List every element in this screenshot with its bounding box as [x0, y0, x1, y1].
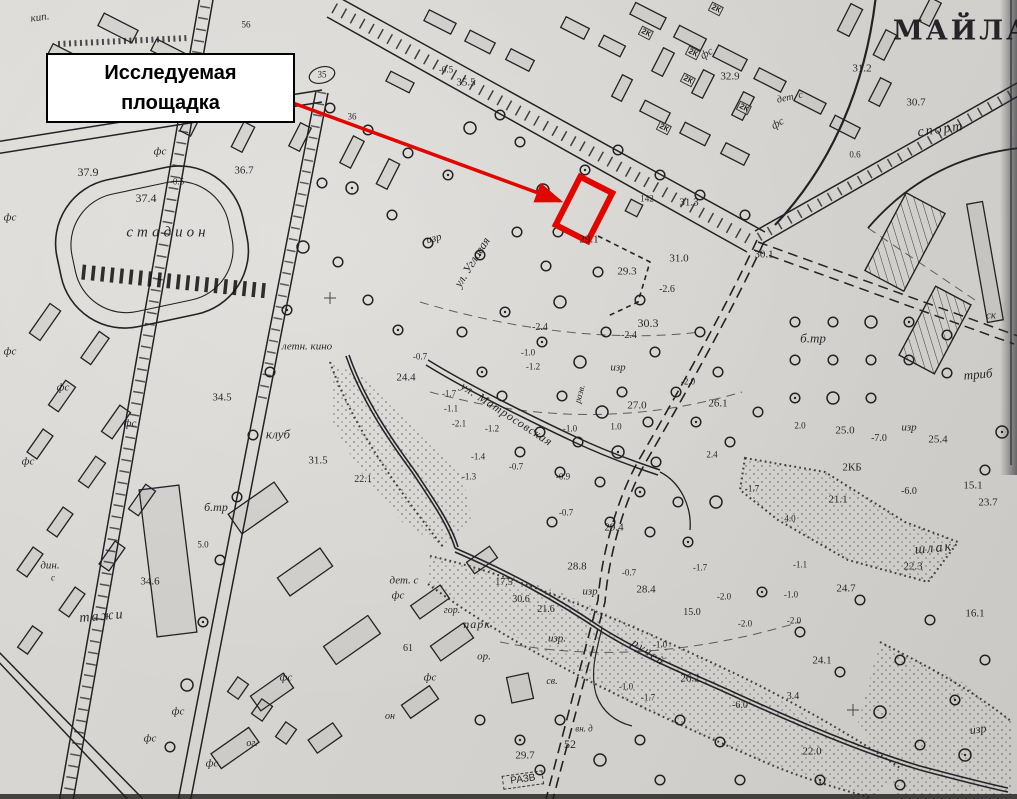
building-outline [386, 71, 414, 93]
tree-symbol [942, 368, 952, 378]
building-outline [98, 13, 138, 43]
tree-symbol [512, 227, 522, 237]
tree-symbol [753, 407, 763, 417]
building-outline [228, 482, 288, 534]
tree-symbol [725, 437, 735, 447]
tree-symbol [535, 427, 545, 437]
building-outline [340, 136, 364, 168]
tree-symbol-dot [519, 739, 521, 741]
tree-symbol [617, 387, 627, 397]
tree-symbol [980, 465, 990, 475]
tree-symbol-dot [954, 699, 956, 701]
tree-symbol-dot [695, 421, 697, 423]
building-outline [599, 35, 626, 57]
stipple-areas [330, 362, 1012, 799]
building-outline [47, 507, 73, 537]
tree-symbol [740, 210, 750, 220]
tree-symbol-dot [541, 341, 543, 343]
annotation-arrow [293, 103, 560, 201]
tree-symbol [403, 148, 413, 158]
building-outline [277, 548, 332, 596]
scanned-topographic-map: МАЙЛАстадионспортул. Угловаяул. Матросов… [0, 0, 1017, 799]
tree-symbol-dot [761, 591, 763, 593]
building-outline [48, 380, 75, 411]
building-outline [692, 70, 714, 99]
tree-symbol [645, 527, 655, 537]
building-outline [640, 100, 670, 123]
building-outline [754, 68, 786, 92]
tree-symbol [790, 355, 800, 365]
tree-symbol-dot [481, 371, 483, 373]
building-outline [276, 722, 297, 744]
tree-symbol [594, 754, 606, 766]
tree-symbol [423, 238, 433, 248]
building-outline [231, 122, 254, 152]
annotation-label-box: Исследуемая площадка [46, 53, 295, 123]
building-outline [713, 45, 747, 71]
tree-symbol [515, 137, 525, 147]
tree-symbol [980, 655, 990, 665]
tree-symbol [574, 356, 586, 368]
building-outline [465, 30, 495, 53]
building-outline [507, 673, 534, 703]
building-outline [873, 30, 896, 60]
building-outline [81, 331, 109, 364]
tree-symbol [596, 406, 608, 418]
tree-symbol [601, 327, 611, 337]
building-outline [612, 75, 633, 101]
tree-symbol [515, 447, 525, 457]
building-outline [430, 623, 473, 661]
building-outline [18, 626, 43, 654]
tree-symbol-dot [794, 397, 796, 399]
tree-symbol [325, 103, 335, 113]
tree-symbol [795, 627, 805, 637]
tree-symbol-dot [687, 541, 689, 543]
tree-symbol [554, 296, 566, 308]
tree-symbol-dot [819, 779, 821, 781]
building-outline [29, 304, 60, 341]
tree-symbol [650, 347, 660, 357]
tree-symbol [710, 496, 722, 508]
tree-symbol [595, 477, 605, 487]
building-outline [721, 143, 750, 165]
tree-symbol [475, 715, 485, 725]
building-outline [561, 17, 590, 39]
building-outline [732, 92, 754, 121]
tree-symbol [593, 267, 603, 277]
tree-symbol [635, 735, 645, 745]
tree-symbol-dot [202, 621, 204, 623]
tree-symbol [215, 555, 225, 565]
tree-symbol [497, 391, 507, 401]
tree-symbol [557, 391, 567, 401]
tree-symbol [655, 775, 665, 785]
building-outline [680, 122, 710, 145]
tree-symbol [828, 317, 838, 327]
tree-symbol-dot [286, 309, 288, 311]
building-outline [674, 25, 707, 50]
tree-symbol [387, 210, 397, 220]
tree-symbol [547, 517, 557, 527]
tree-symbol [317, 178, 327, 188]
tree-symbol [828, 355, 838, 365]
building-outline [625, 199, 642, 216]
building-outline [411, 585, 450, 619]
tree-symbol [713, 367, 723, 377]
building-outline [837, 4, 862, 37]
tree-symbol [555, 715, 565, 725]
tree-symbol-dot [908, 321, 910, 323]
tree-symbol-dot [351, 187, 353, 189]
building-outline [139, 485, 197, 637]
building-outline [424, 10, 456, 34]
tree-symbol [925, 615, 935, 625]
building-outline [228, 677, 249, 699]
tree-symbol [181, 679, 193, 691]
target-site-rectangle [556, 177, 613, 241]
tree-symbol [866, 393, 876, 403]
building-outline [59, 587, 85, 617]
tree-symbol-dot [964, 754, 966, 756]
tree-symbol [535, 765, 545, 775]
building-outline [211, 727, 259, 768]
annotation-line1: Исследуемая [104, 58, 236, 88]
tree-symbol-dot [447, 174, 449, 176]
building-outline [967, 202, 1004, 323]
tree-symbol-dot [584, 169, 586, 171]
tree-symbol [695, 327, 705, 337]
tree-symbol [866, 355, 876, 365]
building-outline [652, 48, 674, 77]
tree-symbol-dot [397, 329, 399, 331]
building-outline [78, 456, 105, 487]
tree-symbol [457, 327, 467, 337]
tree-symbol [735, 775, 745, 785]
tree-symbol [827, 392, 839, 404]
building-outline [869, 78, 891, 107]
tree-symbol [855, 595, 865, 605]
tree-symbol [651, 457, 661, 467]
tree-symbol [363, 295, 373, 305]
tree-symbol-dot [504, 311, 506, 313]
building-outline [401, 686, 438, 719]
building-outline [27, 429, 53, 459]
tree-symbol [555, 467, 565, 477]
building-outline [794, 90, 826, 114]
building-outline [308, 723, 342, 753]
tree-symbol [643, 417, 653, 427]
building-outline [919, 0, 941, 26]
tree-symbol [865, 316, 877, 328]
tree-symbol [790, 317, 800, 327]
building-outline [289, 123, 311, 152]
tree-symbol-dot [639, 491, 641, 493]
building-outline [630, 2, 666, 29]
building-outline [99, 541, 125, 571]
tree-symbol [541, 261, 551, 271]
building-outline [376, 159, 399, 189]
building-outline [324, 616, 381, 665]
tree-symbol [165, 742, 175, 752]
tree-symbol [673, 497, 683, 507]
tree-symbol [835, 667, 845, 677]
building-outline [506, 49, 535, 71]
annotation-line2: площадка [121, 88, 220, 118]
tree-symbol [333, 257, 343, 267]
building-outline [17, 547, 43, 577]
tree-symbol-dot [479, 254, 481, 256]
tree-symbol [464, 122, 476, 134]
tree-symbol-dot [617, 451, 619, 453]
